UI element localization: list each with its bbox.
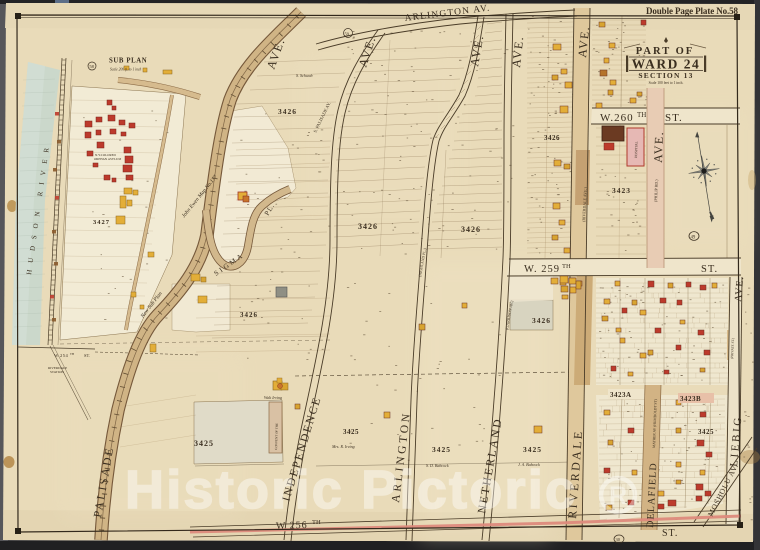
svg-text:58: 58: [89, 64, 94, 69]
svg-text:SUB PLAN: SUB PLAN: [109, 58, 147, 65]
svg-text:ST.: ST.: [84, 353, 90, 358]
svg-text:HOSPITAL: HOSPITAL: [634, 141, 639, 158]
svg-text:Scale 200 ft. to 1 inch: Scale 200 ft. to 1 inch: [110, 68, 142, 72]
svg-text:Double Page Plate No.58: Double Page Plate No.58: [646, 6, 739, 16]
svg-text:3427: 3427: [93, 219, 110, 226]
svg-text:AVE.: AVE.: [651, 131, 666, 164]
svg-text:3425: 3425: [523, 445, 542, 454]
svg-text:Scale 100 feet to 1 inch.: Scale 100 feet to 1 inch.: [649, 81, 684, 85]
svg-text:W.254: W.254: [54, 353, 68, 358]
svg-text:W.260: W.260: [600, 112, 634, 124]
svg-text:ST.: ST.: [701, 264, 718, 275]
svg-text:3425: 3425: [194, 439, 214, 448]
svg-text:3425: 3425: [343, 428, 359, 436]
svg-text:3426: 3426: [544, 134, 560, 142]
svg-text:Historic Pictoric: Historic Pictoric: [125, 460, 575, 520]
svg-text:3426: 3426: [532, 316, 551, 325]
svg-text:R: R: [609, 482, 627, 510]
svg-text:W 256: W 256: [276, 520, 308, 532]
svg-text:3425: 3425: [698, 428, 714, 436]
svg-text:AVE.: AVE.: [733, 276, 746, 303]
svg-text:ORPHAN ASYLUM: ORPHAN ASYLUM: [94, 157, 121, 161]
svg-text:49: 49: [691, 235, 696, 240]
svg-text:3423B: 3423B: [680, 395, 701, 403]
svg-text:30: 30: [616, 537, 621, 542]
svg-text:3423: 3423: [612, 186, 631, 195]
svg-text:ST.: ST.: [665, 112, 683, 124]
svg-text:Mrs. R. Irving: Mrs. R. Irving: [331, 444, 355, 449]
svg-text:TH: TH: [312, 519, 321, 526]
svg-text:59: 59: [345, 31, 350, 36]
svg-text:3425: 3425: [432, 445, 451, 454]
svg-text:Walt Irving: Walt Irving: [264, 395, 282, 400]
svg-text:WARD 24: WARD 24: [632, 57, 701, 72]
svg-text:W. 259: W. 259: [524, 264, 560, 275]
svg-text:3426: 3426: [278, 107, 297, 116]
svg-text:TH: TH: [637, 111, 646, 119]
svg-text:3423A: 3423A: [610, 391, 632, 399]
svg-text:3426: 3426: [240, 311, 258, 319]
svg-text:3426: 3426: [461, 225, 481, 234]
svg-text:TH: TH: [562, 263, 571, 270]
svg-text:STATION: STATION: [50, 370, 64, 374]
svg-text:ST.: ST.: [662, 528, 678, 539]
svg-text:3426: 3426: [358, 222, 378, 231]
svg-text:S. Schwab: S. Schwab: [296, 73, 312, 78]
svg-text:SECTION 13: SECTION 13: [638, 71, 693, 80]
svg-text:PART OF: PART OF: [636, 46, 694, 57]
svg-text:(PHILIP RD.): (PHILIP RD.): [653, 179, 659, 202]
